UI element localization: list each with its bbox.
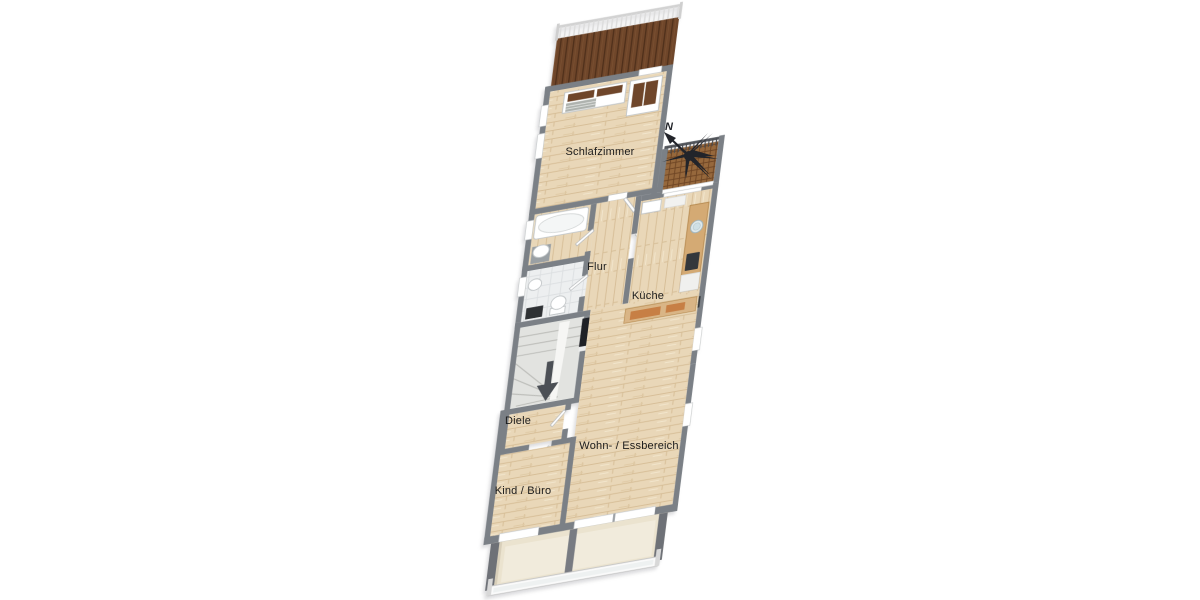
room-label-kind-buero: Kind / Büro <box>495 485 552 497</box>
room-label-kueche: Küche <box>632 290 664 302</box>
compass-rose: N <box>652 112 730 192</box>
floorplan-wrap <box>472 0 753 600</box>
floorplan-svg <box>472 0 753 600</box>
room-label-schlafzimmer: Schlafzimmer <box>565 146 634 158</box>
floorplan-page: Schlafzimmer Flur Küche Wohn- / Essberei… <box>0 0 1200 600</box>
room-label-flur: Flur <box>587 261 607 273</box>
room-label-diele: Diele <box>505 415 531 427</box>
compass-star: N <box>662 121 718 181</box>
room-label-wohn-essbereich: Wohn- / Essbereich <box>579 440 678 452</box>
schlafzimmer-wardrobe <box>626 75 662 116</box>
stairwell <box>504 310 592 416</box>
compass-n-label: N <box>665 121 674 133</box>
cooktop <box>685 252 700 271</box>
